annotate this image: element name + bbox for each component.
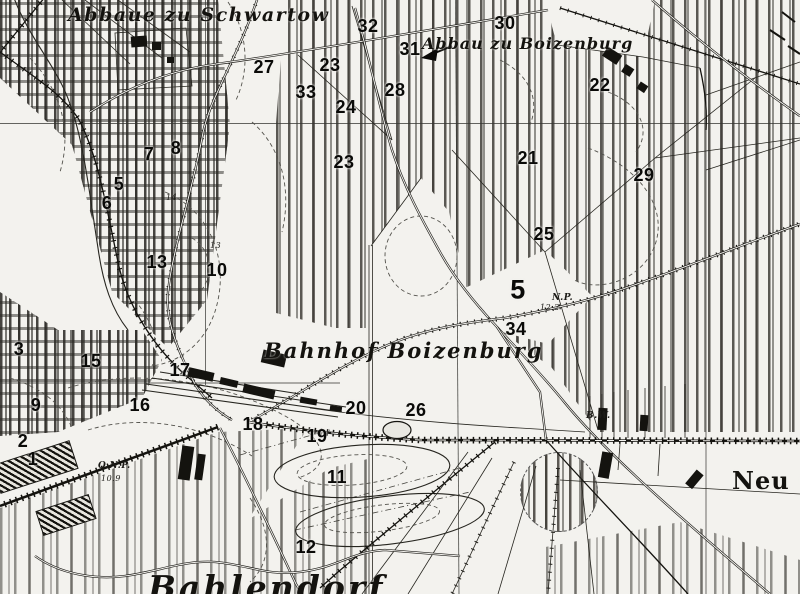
map-number-marker: 25	[533, 225, 554, 243]
map-number-marker: 26	[405, 401, 426, 419]
map-number-marker: 28	[384, 81, 405, 99]
map-number-marker: 21	[517, 149, 538, 167]
number-markers-layer: 1235678910111213151617181920212223232425…	[0, 0, 800, 594]
map-number-marker: 13	[146, 253, 167, 271]
map-number-marker: 19	[306, 427, 327, 445]
map-number-marker: 7	[144, 145, 155, 163]
map-number-marker: 30	[494, 14, 515, 32]
map-number-marker: 27	[253, 58, 274, 76]
map-number-marker: 18	[242, 415, 263, 433]
map-number-marker: 5	[510, 277, 526, 304]
historical-map: Abbaue zu SchwartowAbbau zu BoizenburgBa…	[0, 0, 800, 594]
map-number-marker: 23	[333, 153, 354, 171]
map-number-marker: 9	[31, 396, 42, 414]
map-number-marker: 8	[171, 139, 182, 157]
map-number-marker: 16	[129, 396, 150, 414]
map-number-marker: 31	[399, 40, 420, 58]
map-number-marker: 15	[80, 352, 101, 370]
map-number-marker: 5	[114, 175, 125, 193]
map-number-marker: 3	[14, 340, 25, 358]
map-number-marker: 20	[345, 399, 366, 417]
map-number-marker: 24	[335, 98, 356, 116]
map-number-marker: 34	[505, 320, 526, 338]
map-number-marker: 1	[28, 450, 39, 468]
map-number-marker: 6	[102, 194, 113, 212]
map-number-marker: 32	[357, 17, 378, 35]
map-number-marker: 12	[295, 538, 316, 556]
map-number-marker: 33	[295, 83, 316, 101]
map-number-marker: 10	[206, 261, 227, 279]
map-number-marker: 11	[327, 468, 347, 486]
map-number-marker: 17	[169, 361, 190, 379]
map-number-marker: 23	[319, 56, 340, 74]
map-number-marker: 2	[18, 432, 29, 450]
map-number-marker: 22	[589, 76, 610, 94]
map-number-marker: 29	[633, 166, 654, 184]
